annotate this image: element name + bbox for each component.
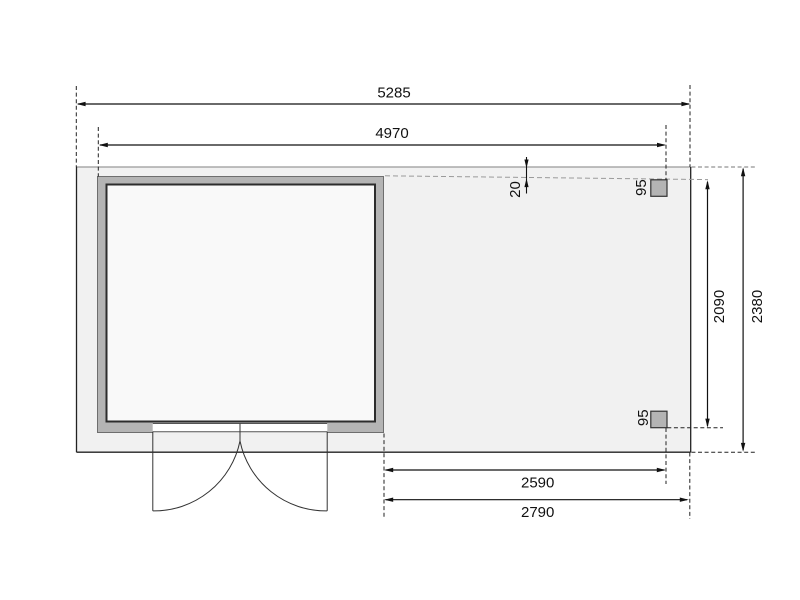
svg-text:2090: 2090 <box>711 290 728 323</box>
svg-text:5285: 5285 <box>377 85 410 102</box>
svg-text:95: 95 <box>633 179 650 196</box>
svg-text:20: 20 <box>507 181 524 198</box>
svg-text:95: 95 <box>635 409 652 426</box>
svg-text:2790: 2790 <box>521 504 554 521</box>
svg-text:4970: 4970 <box>375 125 408 142</box>
svg-text:2380: 2380 <box>749 290 766 323</box>
svg-text:2590: 2590 <box>521 475 554 492</box>
